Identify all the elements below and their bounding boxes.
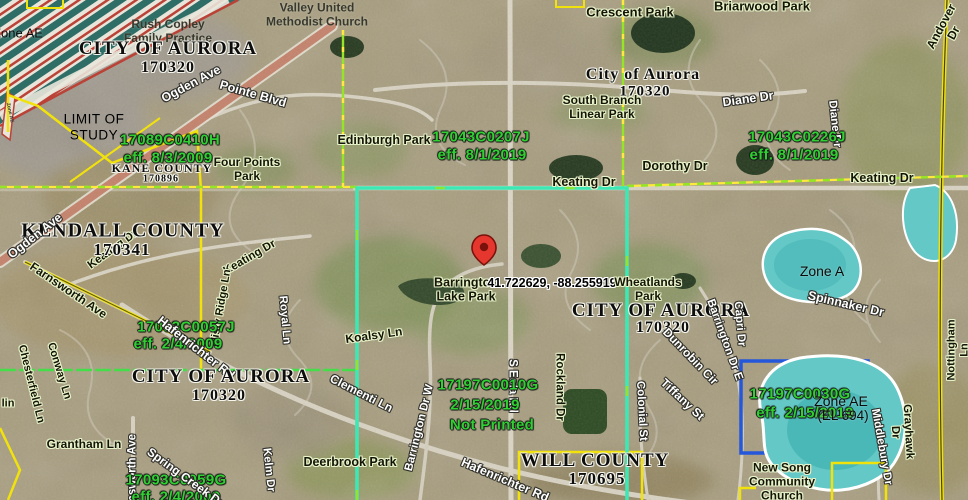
panel-17043C0207J: 17043C0207J: [432, 128, 530, 145]
chesterfield-ln: Chesterfield Ln: [15, 344, 47, 425]
hafenrichter-rd-2: Hafenrichter Rd: [459, 455, 551, 500]
conway-ln: Conway Ln: [44, 341, 73, 401]
new-song-church: New Song Community Church: [749, 461, 815, 500]
eff-17043C0207J: eff. 8/1/2019: [438, 146, 527, 163]
south-branch-linear-park: South Branch Linear Park: [563, 94, 642, 122]
barrington-dr-e: Barrington Dr E: [703, 298, 745, 383]
farnsworth-ave: Farnsworth Ave: [27, 260, 109, 322]
rockland-dr: Rockland Dr: [552, 353, 565, 421]
cid-aurora-w: 170320: [192, 387, 246, 405]
marker-coordinates: 41.722629, -88.255919: [487, 276, 616, 290]
edinburgh-park: Edinburgh Park: [337, 133, 430, 147]
eff-17197C0030G: eff. 2/15/2019: [756, 404, 854, 421]
keating-dr-right: Keating Dr: [850, 171, 913, 185]
lin-fragment: lin: [2, 398, 15, 411]
cid-kane: 170896: [143, 173, 179, 185]
panel-17197C0010G: 17197C0010G: [438, 376, 539, 393]
spring-creek-dr: Spring Creek Dr: [144, 446, 226, 500]
panel-17093C0057J: 17093C0057J: [137, 318, 235, 335]
deerbrook-park: Deerbrook Park: [303, 455, 396, 469]
eff-17089C0410H: eff. 8/3/2009: [124, 149, 213, 166]
pointe-blvd: Pointe Blvd: [218, 78, 288, 111]
zone-a: Zone A: [800, 263, 844, 279]
ogden-ave-2: Ogden Ave: [5, 210, 65, 261]
diane-dr-h: Diane Dr: [722, 88, 775, 109]
cid-aurora-ne: 170320: [620, 83, 671, 100]
farnsworth-ave-v: Farnsworth Ave: [126, 434, 139, 500]
city-of-aurora-w: CITY OF AURORA: [132, 366, 310, 388]
date-17197C0010G: 2/15/2019: [450, 396, 519, 413]
grantham-ln: Grantham Ln: [47, 438, 122, 452]
andover-dr: Andover Dr: [924, 2, 968, 58]
rush-copley-label: Rush Copley Family Practice: [124, 18, 212, 46]
kendall-county: KENDALL COUNTY: [21, 220, 224, 243]
limit-of-study: LIMIT OF STUDY: [64, 111, 125, 142]
diane-dr-v: Diane Dr: [825, 100, 843, 148]
dunrobin-cir: Dunrobin Cir: [660, 326, 721, 388]
royal-ln: Royal Ln: [275, 295, 292, 345]
briarwood-park: Briarwood Park: [714, 0, 810, 14]
cid-will: 170695: [569, 469, 626, 489]
not-printed: Not Printed: [450, 416, 534, 433]
cid-aurora-c: 170320: [636, 319, 690, 337]
city-of-aurora-nw: CITY OF AURORA: [79, 38, 257, 60]
panel-17043C0226J: 17043C0226J: [748, 128, 846, 145]
nottingham-ln: Nottingham Ln: [945, 319, 968, 380]
hafenrichter-rd-1: Hafenrichter Rd: [155, 313, 238, 382]
colonial-st: Colonial St: [633, 381, 649, 442]
zone-ae-el694: Zone AE: [814, 393, 868, 409]
panel-17197C0030G: 17197C0030G: [750, 385, 851, 402]
misty-ridge-ln: Misty Ridge Ln: [208, 268, 234, 347]
map-canvas[interactable]: Zone AEZone AERush Copley Family Practic…: [0, 0, 968, 500]
city-of-aurora-ne: City of Aurora: [586, 66, 700, 84]
eff-17093C0059G: eff. 2/4/2009: [132, 488, 221, 500]
keating-dr-center: Keating Dr: [552, 175, 615, 189]
crescent-park: Crescent Park: [586, 6, 673, 21]
cid-aurora-nw: 170320: [141, 59, 195, 77]
barrington-lake-park: Barrington Lake Park: [434, 276, 498, 305]
eff-17093C0057J: eff. 2/4/2009: [134, 335, 223, 352]
barrington-dr-w: Barrington Dr W: [403, 383, 437, 472]
zone-ae-sliver: Zone AE: [4, 103, 14, 124]
will-county: WILL COUNTY: [521, 450, 670, 472]
keating-dr-left1: Keating Dr: [86, 228, 141, 273]
clementi-ln: Clementi Ln: [327, 372, 394, 415]
location-marker-pin[interactable]: [469, 233, 499, 267]
zone-ae-nw: Zone AE: [0, 27, 43, 42]
kelm-dr: Kelm Dr: [259, 447, 277, 492]
keating-dr-left2: Keating Dr: [222, 238, 279, 279]
panel-17089C0410H: 17089C0410H: [120, 131, 220, 148]
capri-dr: Capri Dr: [730, 301, 747, 347]
middlebury-dr: Middlebury Dr: [868, 408, 894, 486]
koalsy-ln: Koalsy Ln: [345, 325, 404, 347]
tiffany-st: Tiffany St: [657, 376, 706, 423]
spinnaker-dr: Spinnaker Dr: [806, 288, 885, 320]
wheatlands-park: Wheatlands Park: [614, 276, 681, 304]
city-of-aurora-c: CITY OF AURORA: [572, 300, 750, 322]
dorothy-dr: Dorothy Dr: [642, 159, 707, 173]
eff-17043C0226J: eff. 8/1/2019: [750, 146, 839, 163]
kane-county: KANE COUNTY: [112, 162, 213, 176]
cid-kendall: 170341: [94, 240, 151, 260]
ogden-ave-1: Ogden Ave: [159, 62, 223, 105]
el-694: (EL 694): [817, 408, 868, 424]
bethany-church-label: Bethany of Fox Valley United Methodist C…: [266, 0, 368, 29]
panel-17093C0059G: 17093C0059G: [126, 471, 227, 488]
four-points-park: Four Points Park: [214, 156, 281, 184]
s-eola-rd: S Eola Rd: [505, 359, 518, 413]
grayhawk-dr: Grayhawk Dr: [886, 398, 916, 466]
